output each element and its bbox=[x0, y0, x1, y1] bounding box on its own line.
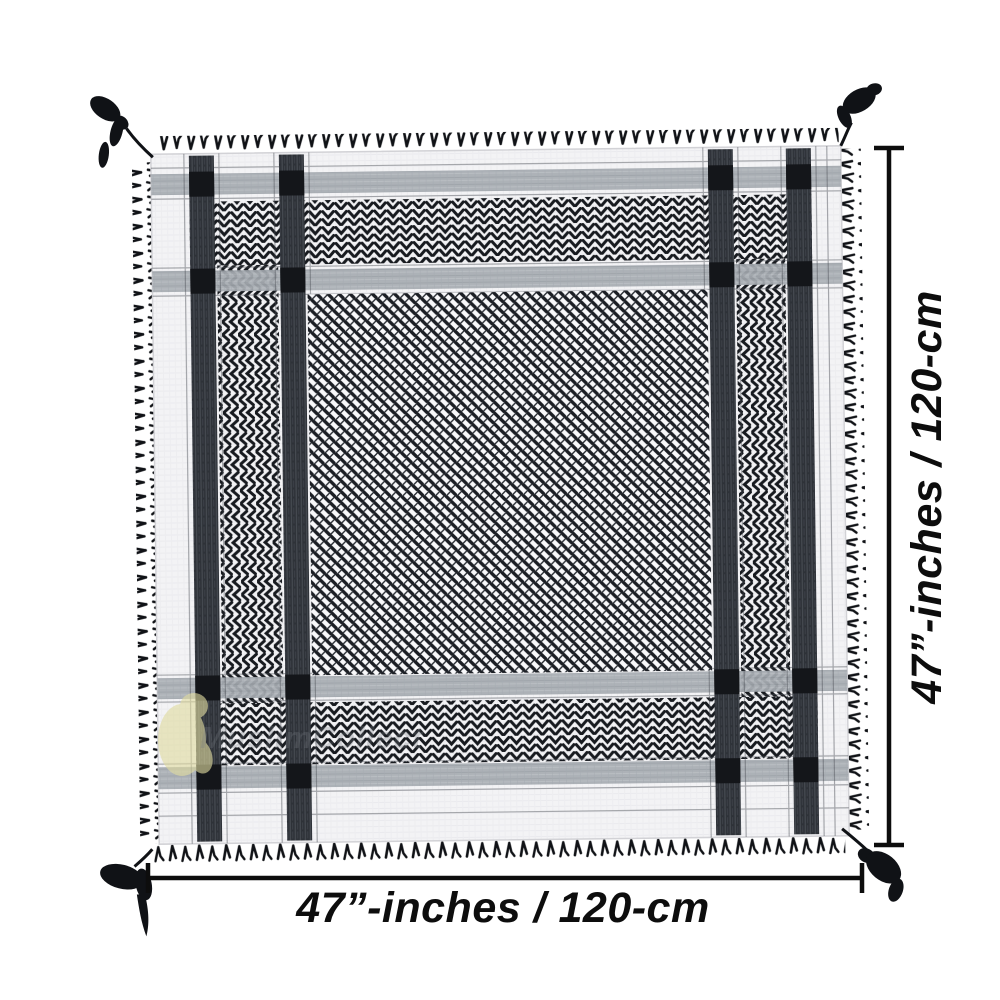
center-lattice-pattern bbox=[308, 289, 713, 675]
corner-tassel-bottom-right bbox=[842, 828, 908, 904]
width-dimension: 47”-inches / 120-cm bbox=[148, 863, 862, 932]
scarf bbox=[85, 81, 908, 937]
zigzag-column-left bbox=[217, 265, 283, 704]
height-dimension-label: 47”-inches / 120-cm bbox=[903, 290, 951, 704]
width-dimension-label: 47”-inches / 120-cm bbox=[295, 884, 709, 932]
watermark-text: MuslimCollect bbox=[200, 720, 424, 755]
scarf-product-image: MuslimCollect 47”-inches / 120-cm 47”-in… bbox=[0, 0, 1000, 1000]
product-photo-stage: MuslimCollect 47”-inches / 120-cm 47”-in… bbox=[0, 0, 1000, 1000]
height-dimension: 47”-inches / 120-cm bbox=[874, 148, 951, 845]
corner-tassel-top-left bbox=[85, 90, 153, 168]
zigzag-column-right bbox=[736, 258, 790, 697]
corner-tassel-bottom-left bbox=[97, 849, 155, 937]
corner-tassel-top-right bbox=[833, 81, 884, 145]
